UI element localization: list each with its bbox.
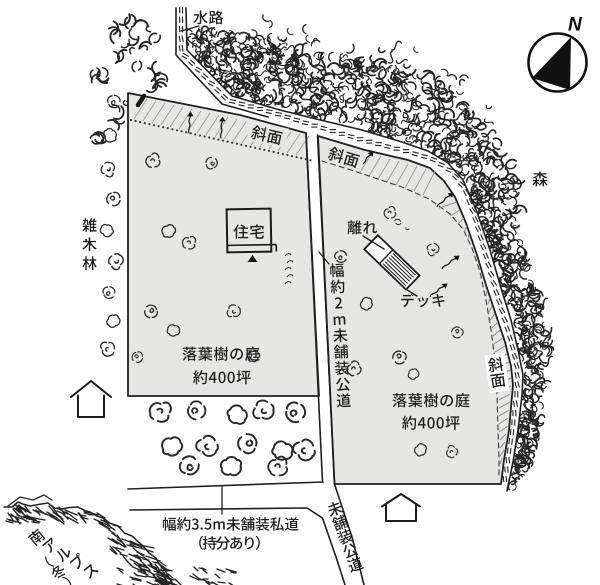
svg-text:N: N [568, 15, 583, 36]
